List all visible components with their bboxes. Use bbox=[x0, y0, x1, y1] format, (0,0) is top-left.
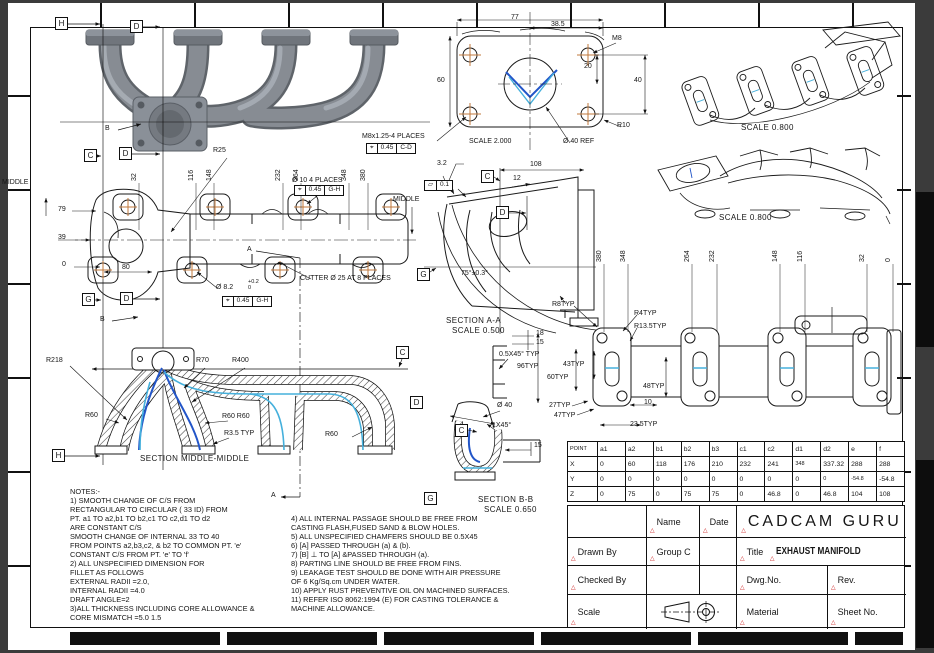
section-title: SECTION B-B bbox=[478, 496, 534, 505]
dim: R400 bbox=[232, 357, 249, 365]
checked-by-cell: △Checked By bbox=[568, 565, 646, 594]
position-icon: ⌖ bbox=[295, 186, 305, 195]
cutter-note: CUTTER Ø 25 AT 8 PLACES bbox=[300, 275, 391, 283]
sheet-no-cell: △Sheet No. bbox=[827, 594, 906, 629]
dim: 77 bbox=[511, 14, 519, 22]
station: 148 bbox=[206, 155, 213, 181]
station: 148 bbox=[772, 236, 779, 262]
dim: R60 bbox=[325, 431, 338, 439]
dim: 20 bbox=[584, 63, 592, 71]
dim: 10 bbox=[644, 399, 652, 407]
dim: R60 bbox=[85, 412, 98, 420]
flatness-icon: ▱ bbox=[425, 181, 436, 190]
datum-flag-d: D bbox=[119, 147, 132, 160]
station: 380 bbox=[596, 236, 603, 262]
station: 116 bbox=[797, 236, 804, 262]
dim: Ø 40 REF bbox=[563, 138, 594, 146]
rev-cell: △Rev. bbox=[827, 565, 906, 594]
dim: 43TYP bbox=[563, 361, 584, 369]
dim: 47TYP bbox=[554, 412, 575, 420]
notes-right: 4) ALL INTERNAL PASSAGE SHOULD BE FREE F… bbox=[291, 514, 566, 613]
label: MIDDLE bbox=[2, 179, 28, 187]
station: 116 bbox=[188, 155, 195, 181]
drawing-title-cell: △Title △EXHAUST MANIFOLD bbox=[736, 537, 906, 565]
tolerance: +0.2 0 bbox=[248, 279, 259, 291]
annotation-marker-icon: △ bbox=[703, 528, 708, 534]
dim: 0.5X45° TYP bbox=[499, 351, 539, 359]
projection-symbol-cell bbox=[646, 594, 736, 629]
annotation-marker-icon: △ bbox=[571, 556, 576, 562]
section-arrow-label: B bbox=[105, 125, 110, 133]
dim: R60 R60 bbox=[222, 413, 250, 421]
dim: R70 bbox=[196, 357, 209, 365]
view-scale: SCALE 0.800 bbox=[741, 124, 794, 133]
date-cell: △Date bbox=[699, 506, 736, 537]
hole-note: Ø 10 4 PLACES bbox=[292, 177, 343, 185]
dim: 80 bbox=[122, 264, 130, 272]
annotation-marker-icon: △ bbox=[741, 528, 746, 534]
dwg-no-cell: △Dwg.No. bbox=[736, 565, 827, 594]
station: 32 bbox=[131, 157, 138, 181]
third-angle-projection-icon bbox=[661, 600, 723, 624]
dim: 15 bbox=[536, 339, 544, 347]
company-cell: △CADCAM GURU bbox=[736, 506, 906, 537]
view-scale: SCALE 0.800 bbox=[719, 214, 772, 223]
datum-flag-g: G bbox=[417, 268, 430, 281]
datum-flag-h: H bbox=[52, 449, 65, 462]
section-title: SECTION MIDDLE-MIDDLE bbox=[140, 455, 249, 464]
dim: 27TYP bbox=[549, 402, 570, 410]
datum-flag-d: D bbox=[410, 396, 423, 409]
dim: 15 bbox=[534, 442, 542, 450]
station: 232 bbox=[709, 236, 716, 262]
material-cell: △Material bbox=[736, 594, 827, 629]
annotation-marker-icon: △ bbox=[740, 556, 745, 562]
annotation-marker-icon: △ bbox=[650, 556, 655, 562]
datum-flag-g: G bbox=[424, 492, 437, 505]
drawn-by-cell: △Drawn By bbox=[568, 537, 646, 565]
surface-finish: 3.2 bbox=[437, 160, 447, 168]
datum-flag-c: C bbox=[455, 424, 468, 437]
title-block-cell bbox=[699, 537, 736, 565]
dim: R4TYP bbox=[634, 310, 657, 318]
dim: 60 bbox=[437, 77, 445, 85]
section-title: SECTION A-A bbox=[446, 317, 501, 326]
scale-cell: △Scale bbox=[568, 594, 646, 629]
station: 264 bbox=[684, 236, 691, 262]
border-zone-bottom bbox=[70, 632, 903, 645]
dim: 48TYP bbox=[643, 383, 664, 391]
gdt-frame: ▱0.1 bbox=[424, 180, 453, 191]
dim: R218 bbox=[46, 357, 63, 365]
station: 232 bbox=[275, 155, 282, 181]
station: 380 bbox=[360, 155, 367, 181]
annotation-marker-icon: △ bbox=[740, 620, 745, 626]
dim: 18 bbox=[536, 330, 544, 338]
view-scale: SCALE 2.000 bbox=[469, 138, 511, 146]
station: 348 bbox=[620, 236, 627, 262]
dim: R25 bbox=[213, 147, 226, 155]
title-block-cell bbox=[699, 565, 736, 594]
dim: 1X45° bbox=[492, 422, 511, 430]
datum-flag-c: C bbox=[481, 170, 494, 183]
annotation-marker-icon: △ bbox=[650, 528, 655, 534]
hole-note: Ø 8.2 bbox=[216, 284, 233, 292]
title-block-cell bbox=[568, 506, 646, 537]
table-row: Y0 00 00 00 00 -54.8-54.8 bbox=[568, 472, 905, 487]
notes-left: NOTES:- 1) SMOOTH CHANGE OF C/S FROM REC… bbox=[70, 487, 298, 622]
dim: 40 bbox=[634, 77, 642, 85]
datum-flag-d: D bbox=[496, 206, 509, 219]
datum-flag-d: D bbox=[130, 20, 143, 33]
section-arrow-label: A bbox=[247, 246, 252, 254]
gdt-frame: ⌖0.45G-H bbox=[222, 296, 272, 307]
dim: 75°±0.3° bbox=[461, 270, 488, 278]
gdt-frame: ⌖0.45G-H bbox=[294, 185, 344, 196]
annotation-marker-icon: △ bbox=[740, 585, 745, 591]
group-cell: △Group C bbox=[646, 537, 699, 565]
datum-flag-c: C bbox=[396, 346, 409, 359]
datum-flag-c: C bbox=[84, 149, 97, 162]
position-icon: ⌖ bbox=[223, 297, 233, 306]
dim: R3.5 TYP bbox=[224, 430, 254, 438]
dim: 38.5 bbox=[551, 21, 565, 29]
annotation-marker-icon: △ bbox=[571, 585, 576, 591]
dim: 0 bbox=[62, 261, 66, 269]
dim: 60TYP bbox=[547, 374, 568, 382]
title-block-cell bbox=[646, 565, 699, 594]
border-zone-left bbox=[8, 3, 30, 648]
dim: 23.5TYP bbox=[630, 421, 657, 429]
name-cell: △Name bbox=[646, 506, 699, 537]
annotation-marker-icon: △ bbox=[831, 620, 836, 626]
point-table: POINTa1 a2b1 b2b3 c1c2 d1d2 ef X0 60118 … bbox=[567, 441, 905, 502]
position-icon: ⌖ bbox=[367, 144, 377, 153]
border-zone-top bbox=[8, 3, 912, 27]
dim: 12 bbox=[513, 175, 521, 183]
drawing-sheet: { "colors":{"paper":"#ffffff","ink":"#1a… bbox=[0, 0, 934, 653]
view-scale: SCALE 0.500 bbox=[452, 327, 505, 336]
dim: 79 bbox=[58, 206, 66, 214]
title-block: △Name △Date △CADCAM GURU △Drawn By △Grou… bbox=[567, 505, 905, 628]
section-arrow-label: B bbox=[100, 316, 105, 324]
label: MIDDLE bbox=[393, 196, 419, 204]
dim: R8TYP bbox=[552, 301, 575, 309]
table-header-row: POINTa1 a2b1 b2b3 c1c2 d1d2 ef bbox=[568, 442, 905, 457]
thread-note: M8x1.25-4 PLACES bbox=[362, 133, 425, 141]
station: 0 bbox=[885, 240, 892, 262]
dim: R13.5TYP bbox=[634, 323, 666, 331]
dim: 39 bbox=[58, 234, 66, 242]
annotation-marker-icon: △ bbox=[571, 620, 576, 626]
drawing-title: EXHAUST MANIFOLD bbox=[776, 546, 861, 557]
annotation-marker-icon: △ bbox=[831, 585, 836, 591]
dim: R10 bbox=[617, 122, 630, 130]
dim: M8 bbox=[612, 35, 622, 43]
table-row: X0 60118 176210 232241 348337.32 288288 bbox=[568, 457, 905, 472]
datum-flag-h: H bbox=[55, 17, 68, 30]
company-name: CADCAM GURU bbox=[748, 513, 902, 531]
station: 32 bbox=[859, 238, 866, 262]
table-row: Z0 750 7575 046.8 046.8 104108 bbox=[568, 487, 905, 502]
dim: 108 bbox=[530, 161, 542, 169]
dim: 96TYP bbox=[517, 363, 538, 371]
datum-flag-d: D bbox=[120, 292, 133, 305]
screen-edge-block bbox=[916, 192, 934, 347]
gdt-frame: ⌖0.45C-D bbox=[366, 143, 416, 154]
datum-flag-g: G bbox=[82, 293, 95, 306]
dim: Ø 40 bbox=[497, 402, 512, 410]
annotation-marker-icon: △ bbox=[770, 556, 775, 562]
screen-edge-block bbox=[916, 460, 934, 648]
